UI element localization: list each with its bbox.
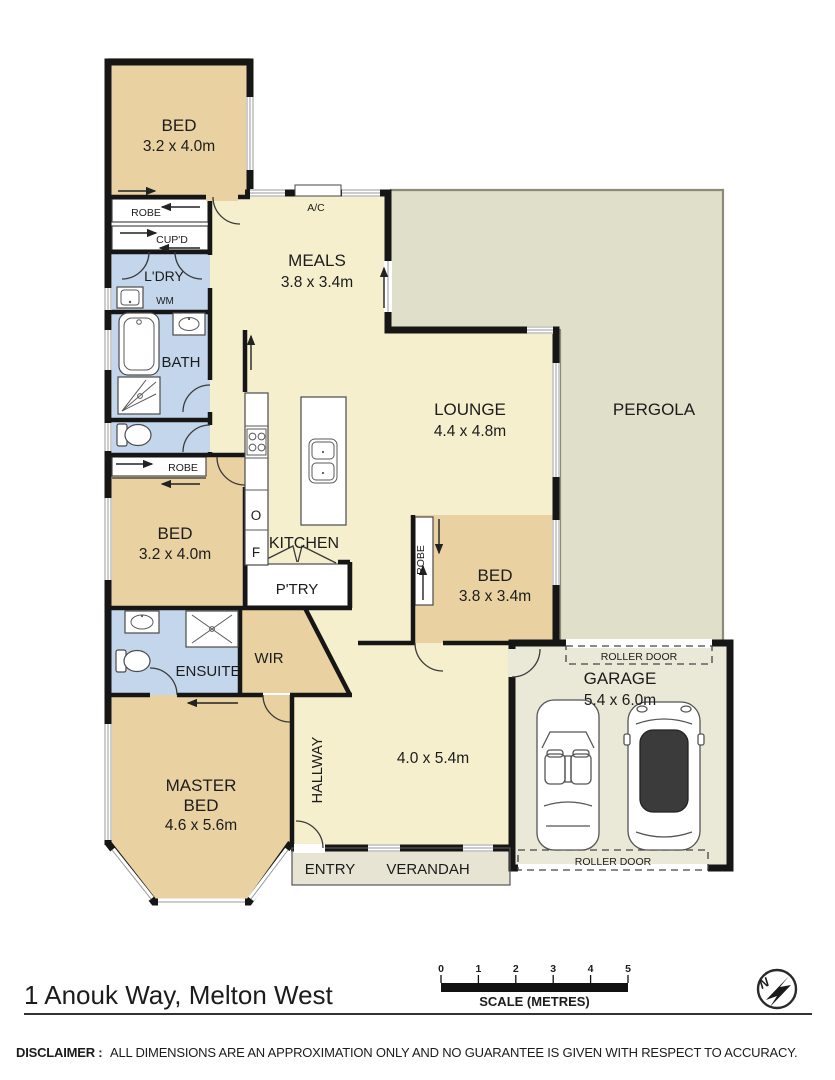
cupboard-label: CUP'D xyxy=(156,234,188,246)
toilet-icon xyxy=(117,424,151,446)
window xyxy=(552,363,560,477)
bathtub-icon xyxy=(119,313,159,375)
lounge-dims: 4.4 x 4.8m xyxy=(434,423,506,440)
family-dims: 4.0 x 5.4m xyxy=(397,750,469,767)
hallway-label: HALLWAY xyxy=(310,736,326,803)
window xyxy=(104,498,112,580)
car-icon xyxy=(624,702,704,850)
verandah-label: VERANDAH xyxy=(386,861,469,878)
bed2-label: BED xyxy=(158,524,193,543)
window xyxy=(104,724,112,840)
lounge-label: LOUNGE xyxy=(434,400,506,419)
bed2-dims: 3.2 x 4.0m xyxy=(139,546,211,563)
scale-bar-rule xyxy=(441,983,628,992)
ensuite-label: ENSUITE xyxy=(175,663,240,680)
scale-tick-1: 1 xyxy=(475,963,481,975)
roller-door-top-label: ROLLER DOOR xyxy=(601,651,678,663)
compass-icon: N xyxy=(756,970,796,1008)
garage-label: GARAGE xyxy=(584,669,657,688)
scale-tick-5: 5 xyxy=(625,963,631,975)
oven-label: O xyxy=(251,508,262,523)
scale-tick-2: 2 xyxy=(513,963,519,975)
ensuite-basin-icon xyxy=(125,611,159,633)
address-title: 1 Anouk Way, Melton West xyxy=(24,980,334,1010)
master-bed-label-2: BED xyxy=(184,796,219,815)
wir-label: WIR xyxy=(254,650,283,667)
window xyxy=(368,844,400,852)
bed3-label: BED xyxy=(478,566,513,585)
robe2-label: ROBE xyxy=(168,462,198,474)
window xyxy=(463,844,493,852)
scale-bar: 0 1 2 3 4 5 SCALE (METRES) xyxy=(438,963,631,1009)
window xyxy=(342,189,380,197)
footer: 1 Anouk Way, Melton West 0 1 2 3 4 5 SCA… xyxy=(16,963,812,1060)
kitchen-bench xyxy=(245,393,268,565)
scale-tick-4: 4 xyxy=(588,963,594,975)
bed1-dims: 3.2 x 4.0m xyxy=(143,138,215,155)
bed3-dims: 3.8 x 3.4m xyxy=(459,588,531,605)
pantry-label: P'TRY xyxy=(276,581,319,598)
pergola-label: PERGOLA xyxy=(613,400,696,419)
basin-icon xyxy=(173,313,205,335)
ensuite-toilet-icon xyxy=(116,650,150,672)
master-bed-dims: 4.6 x 5.6m xyxy=(165,817,237,834)
meals-label: MEALS xyxy=(288,251,346,270)
roller-door-bottom-label: ROLLER DOOR xyxy=(575,856,652,868)
ensuite-shower-icon xyxy=(186,611,238,647)
laundry-label: L'DRY xyxy=(144,268,184,284)
window xyxy=(246,97,254,170)
window xyxy=(250,189,285,197)
entry-label: ENTRY xyxy=(305,861,356,878)
wm-label: WM xyxy=(156,296,174,307)
shower-icon xyxy=(118,377,160,414)
window xyxy=(104,423,112,451)
kitchen-label: KITCHEN xyxy=(269,535,339,552)
scale-bar-label: SCALE (METRES) xyxy=(479,994,590,1009)
floor-plan-page: BED 3.2 x 4.0m ROBE CUP'D L'DRY WM BATH … xyxy=(0,0,835,1080)
bath-label: BATH xyxy=(162,354,201,371)
scale-tick-3: 3 xyxy=(550,963,556,975)
window xyxy=(527,326,553,334)
bed1-label: BED xyxy=(162,116,197,135)
bed3-corridor xyxy=(388,515,413,648)
fridge-label: F xyxy=(252,545,260,560)
disclaimer-label: DISCLAIMER : xyxy=(16,1045,102,1060)
garage-dims: 5.4 x 6.0m xyxy=(584,692,656,709)
island-bench xyxy=(301,397,346,525)
car-icon xyxy=(537,700,599,850)
window xyxy=(552,520,560,585)
ac-label: A/C xyxy=(307,202,325,214)
window xyxy=(104,330,112,370)
scale-tick-0: 0 xyxy=(438,963,444,975)
master-bed-label-1: MASTER xyxy=(166,776,237,795)
washing-machine-icon xyxy=(117,287,143,308)
ac-unit xyxy=(295,185,341,196)
disclaimer-text: ALL DIMENSIONS ARE AN APPROXIMATION ONLY… xyxy=(110,1045,797,1060)
floor-plan: BED 3.2 x 4.0m ROBE CUP'D L'DRY WM BATH … xyxy=(0,0,835,1080)
meals-dims: 3.8 x 3.4m xyxy=(281,274,353,291)
robe1-label: ROBE xyxy=(131,207,161,219)
robe3-label: ROBE xyxy=(415,545,427,575)
window xyxy=(104,288,112,310)
